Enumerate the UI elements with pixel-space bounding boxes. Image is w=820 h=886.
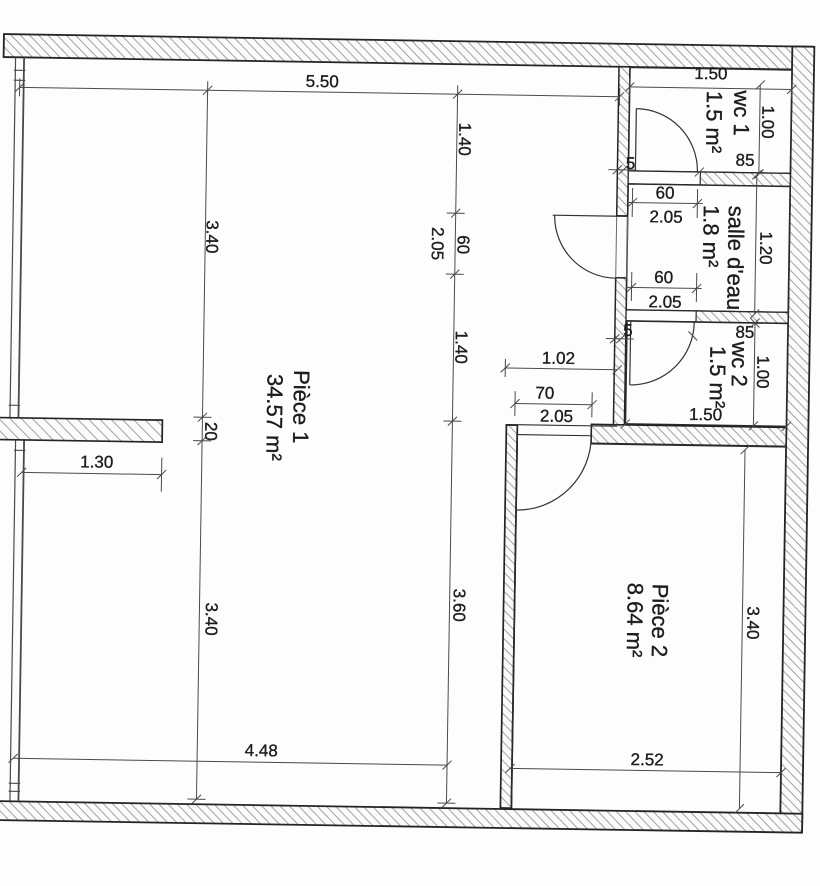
- svg-text:1.40: 1.40: [455, 123, 475, 156]
- svg-text:1.50: 1.50: [689, 405, 722, 425]
- svg-text:85: 85: [735, 323, 754, 342]
- svg-text:3.40: 3.40: [201, 602, 221, 635]
- svg-text:4.48: 4.48: [245, 741, 278, 761]
- svg-text:3.40: 3.40: [743, 606, 763, 639]
- svg-text:2.05: 2.05: [540, 407, 573, 427]
- svg-text:1.5 m²: 1.5 m²: [705, 346, 731, 409]
- svg-text:1.8 m²: 1.8 m²: [698, 205, 724, 268]
- svg-text:Pièce 1: Pièce 1: [288, 370, 314, 444]
- svg-text:2.52: 2.52: [630, 750, 663, 770]
- svg-text:20: 20: [201, 422, 220, 441]
- svg-text:1.5 m²: 1.5 m²: [701, 91, 727, 154]
- svg-text:2.05: 2.05: [649, 207, 682, 227]
- svg-text:60: 60: [453, 235, 472, 254]
- svg-text:1.00: 1.00: [753, 355, 773, 388]
- svg-text:1.30: 1.30: [80, 452, 113, 472]
- svg-text:3.60: 3.60: [449, 589, 469, 622]
- svg-text:2.05: 2.05: [648, 292, 681, 312]
- svg-text:1.02: 1.02: [542, 349, 575, 369]
- svg-text:2.05: 2.05: [428, 227, 448, 260]
- svg-text:5.50: 5.50: [306, 72, 339, 92]
- svg-text:1.40: 1.40: [451, 331, 471, 364]
- svg-text:wc 1: wc 1: [729, 89, 755, 136]
- svg-text:60: 60: [654, 268, 673, 287]
- svg-text:5: 5: [623, 321, 633, 340]
- svg-text:8.64 m²: 8.64 m²: [622, 583, 648, 658]
- svg-text:70: 70: [535, 383, 554, 402]
- svg-text:Pièce 2: Pièce 2: [647, 584, 673, 658]
- svg-text:34.57 m²: 34.57 m²: [261, 374, 287, 461]
- svg-text:60: 60: [655, 183, 674, 202]
- svg-text:3.40: 3.40: [202, 220, 222, 253]
- svg-text:85: 85: [735, 151, 754, 170]
- svg-text:1.20: 1.20: [756, 231, 776, 264]
- svg-text:salle d'eau: salle d'eau: [722, 206, 749, 311]
- svg-text:1.50: 1.50: [694, 64, 727, 84]
- svg-text:1.00: 1.00: [758, 105, 778, 138]
